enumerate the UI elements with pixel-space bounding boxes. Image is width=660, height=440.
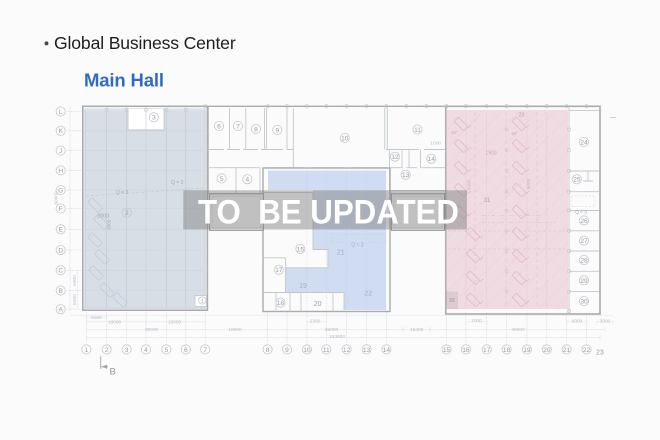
svg-text:6000: 6000	[572, 319, 583, 325]
svg-text:17: 17	[483, 347, 491, 354]
svg-text:12: 12	[391, 154, 399, 161]
svg-text:11: 11	[414, 127, 421, 134]
svg-text:7: 7	[236, 123, 240, 130]
svg-text:3: 3	[125, 347, 129, 354]
svg-text:4: 4	[144, 347, 148, 354]
svg-text:18400: 18400	[410, 327, 424, 333]
svg-text:22: 22	[583, 347, 591, 354]
svg-text:10: 10	[341, 135, 349, 142]
svg-text:5: 5	[220, 176, 224, 183]
svg-text:20: 20	[543, 347, 551, 354]
svg-text:28: 28	[580, 257, 588, 264]
svg-text:F: F	[59, 206, 63, 213]
svg-text:153600: 153600	[329, 334, 345, 340]
svg-text:K: K	[58, 128, 63, 135]
svg-text:3000: 3000	[600, 319, 611, 325]
svg-text:6: 6	[184, 347, 188, 354]
svg-text:23: 23	[596, 350, 604, 357]
svg-text:Q = 3: Q = 3	[171, 180, 184, 186]
svg-text:2000: 2000	[97, 214, 109, 220]
svg-text:J: J	[59, 148, 62, 155]
svg-text:3000: 3000	[107, 219, 112, 230]
svg-text:A: A	[58, 307, 63, 314]
svg-text:TO BE UPDATED: TO BE UPDATED	[198, 194, 459, 232]
svg-text:C: C	[58, 268, 63, 275]
svg-text:Main Hall: Main Hall	[84, 70, 164, 91]
svg-text:6000: 6000	[467, 179, 472, 190]
svg-text:14: 14	[383, 347, 391, 354]
svg-text:15: 15	[443, 347, 451, 354]
svg-text:30: 30	[580, 298, 588, 305]
svg-text:32: 32	[449, 298, 455, 304]
svg-text:4: 4	[245, 177, 249, 184]
svg-text:29: 29	[580, 278, 588, 285]
svg-text:13: 13	[402, 172, 410, 179]
svg-text:G: G	[58, 187, 63, 194]
svg-text:13: 13	[363, 347, 371, 354]
svg-text:1000: 1000	[471, 318, 482, 324]
svg-text:15: 15	[297, 246, 305, 253]
svg-text:18000: 18000	[168, 319, 182, 325]
svg-text:18000: 18000	[228, 327, 242, 333]
svg-text:21: 21	[337, 250, 345, 257]
svg-text:Q = 3: Q = 3	[116, 190, 129, 196]
svg-text:23: 23	[519, 113, 525, 119]
svg-text:7: 7	[203, 347, 207, 354]
svg-text:1: 1	[85, 347, 89, 354]
svg-text:12: 12	[343, 347, 351, 354]
svg-text:18000: 18000	[108, 319, 122, 325]
svg-text:B: B	[58, 288, 63, 295]
svg-text:Q = 3: Q = 3	[351, 242, 364, 248]
svg-text:18: 18	[277, 300, 285, 307]
svg-text:36000: 36000	[145, 327, 159, 333]
svg-text:14: 14	[428, 156, 436, 163]
svg-text:6000: 6000	[72, 275, 78, 286]
svg-text:D: D	[58, 247, 63, 254]
svg-text:21: 21	[563, 347, 571, 354]
svg-text:31: 31	[484, 198, 491, 204]
svg-text:19: 19	[523, 347, 531, 354]
svg-text:26: 26	[580, 218, 588, 225]
svg-text:L: L	[59, 109, 63, 116]
svg-text:8: 8	[266, 347, 270, 354]
svg-text:45°: 45°	[511, 131, 518, 136]
svg-text:6000: 6000	[91, 315, 102, 321]
svg-text:22: 22	[364, 291, 372, 298]
svg-text:3: 3	[152, 115, 156, 122]
svg-text:1000: 1000	[430, 141, 441, 147]
svg-text:8: 8	[254, 126, 258, 133]
svg-text:10: 10	[303, 347, 311, 354]
svg-text:6000: 6000	[72, 294, 78, 305]
svg-text:27: 27	[580, 238, 588, 245]
svg-text:Global Business Center: Global Business Center	[54, 33, 236, 53]
svg-text:1: 1	[201, 298, 204, 304]
svg-text:45°: 45°	[451, 130, 458, 135]
svg-text:Q = 3: Q = 3	[575, 210, 587, 216]
svg-text:19: 19	[299, 283, 307, 290]
svg-text:17: 17	[275, 267, 283, 274]
svg-text:25: 25	[573, 177, 581, 184]
svg-text:11: 11	[323, 347, 330, 354]
svg-text:9: 9	[285, 347, 289, 354]
svg-text:6: 6	[217, 123, 221, 130]
svg-text:B: B	[110, 367, 116, 378]
svg-text:18: 18	[503, 347, 511, 354]
svg-text:9: 9	[275, 127, 279, 134]
svg-text:2: 2	[125, 210, 129, 217]
svg-text:45000: 45000	[511, 327, 525, 333]
svg-text:20: 20	[314, 301, 322, 308]
svg-text:E: E	[58, 227, 63, 234]
svg-text:5: 5	[165, 347, 169, 354]
svg-text:36000: 36000	[325, 327, 339, 333]
svg-text:H: H	[58, 168, 63, 175]
svg-text:2: 2	[105, 347, 109, 354]
svg-text:16: 16	[462, 347, 470, 354]
svg-text:24: 24	[580, 139, 588, 146]
svg-text:2300: 2300	[310, 319, 321, 325]
svg-text:6000: 6000	[526, 178, 531, 189]
svg-text:1900: 1900	[485, 150, 496, 156]
